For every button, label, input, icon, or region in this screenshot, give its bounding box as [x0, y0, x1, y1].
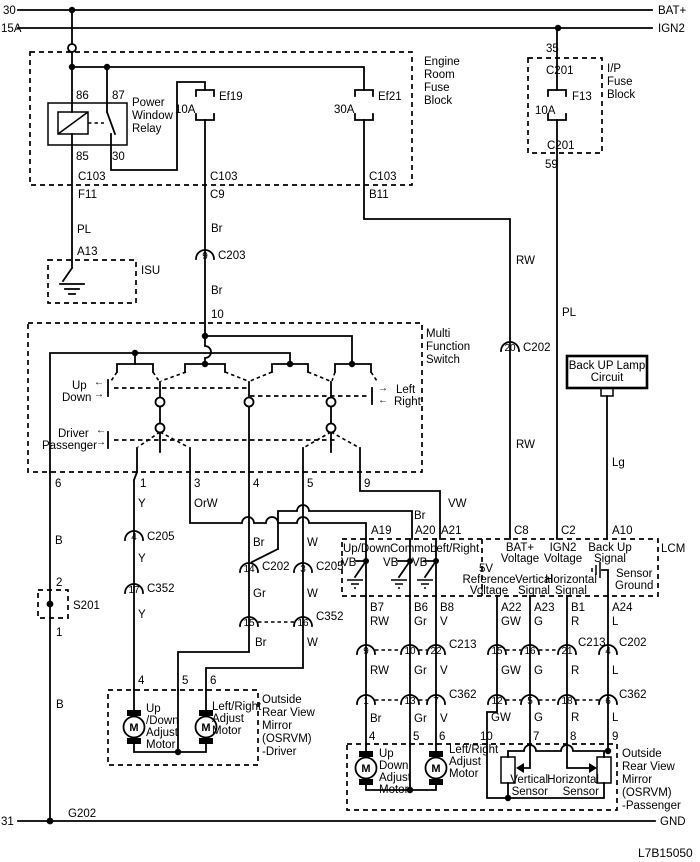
isu-run-label: A13 [77, 246, 97, 258]
lcm-label: A20 [415, 525, 435, 537]
multi-function-switch-label: Down [62, 392, 91, 404]
svg-text:M: M [431, 763, 440, 775]
passenger-mirror-label: Motor [379, 784, 409, 796]
switch-output-pins-label: 4 [253, 478, 260, 490]
engine-room-fuse-block-label: C103 [369, 171, 397, 183]
passenger-chain-label: 8 [570, 731, 576, 743]
passenger-chain-label: 5 [413, 731, 419, 743]
svg-text:M: M [361, 763, 370, 775]
passenger-mirror-label: (OSRVM) [622, 787, 672, 799]
bat-voltage-run-label: RW [516, 439, 535, 451]
engine-room-fuse-block-label: C9 [210, 189, 225, 201]
bat-voltage-run-label: 20 [504, 343, 516, 354]
engine-room-fuse-block-label: 87 [112, 90, 125, 102]
passenger-chain-label: 12 [491, 696, 503, 707]
driver-chain-label: 17 [128, 585, 140, 596]
passenger-chain-label: V [440, 616, 448, 628]
top-buses-label: IGN2 [658, 23, 685, 35]
driver-chain-label: Y [138, 609, 146, 621]
lcm-label: Signal [555, 585, 587, 597]
lcm-label: Sensor [616, 568, 653, 580]
engine-room-fuse-block-label: 30 [112, 151, 125, 163]
multi-function-switch-label: Passenger [42, 440, 97, 452]
driver-chain-label: 4 [131, 532, 137, 543]
leftright-motor-icon-passenger: M [426, 751, 447, 785]
passenger-chain-label: R [571, 616, 579, 628]
ip-fuse-block-label: 10A [535, 105, 556, 117]
driver-mirror-label: 4 [138, 675, 145, 687]
driver-chain-label: Gr [253, 588, 266, 600]
lcm-label: Left/Right [430, 543, 480, 555]
ip-fuse-block-label: Block [607, 89, 635, 101]
engine-room-fuse-block-label: Fuse [424, 82, 450, 94]
passenger-mirror-label: Outside [622, 748, 662, 760]
passenger-chain-label: 7 [533, 731, 539, 743]
lcm-label: A22 [501, 602, 521, 614]
engine-room-fuse-block-label: 86 [76, 90, 89, 102]
engine-room-fuse-block-label: Block [424, 95, 452, 107]
passenger-mirror-label: Vertical [510, 774, 548, 786]
driver-chain-label: G202 [68, 808, 96, 820]
lcm-label: A19 [371, 525, 391, 537]
driver-chain-label: C352 [316, 611, 344, 623]
engine-room-fuse-block-label: B11 [369, 189, 389, 201]
passenger-chain-label: 4 [605, 646, 611, 657]
passenger-chain-label: G [534, 616, 543, 628]
multi-function-switch-label: ← [96, 425, 106, 436]
switch-feed-run-label: Br [211, 285, 223, 297]
driver-mirror-label: Motor [212, 725, 242, 737]
ip-fuse-block-label: 35 [546, 43, 559, 55]
power-window-relay [48, 103, 127, 145]
lcm-label: Signal [518, 585, 550, 597]
switch-feed-run-label: Br [211, 223, 223, 235]
driver-mirror-label: Adjust [146, 727, 179, 739]
svg-text:M: M [129, 722, 138, 734]
passenger-mirror-label: Up [379, 748, 394, 760]
top-buses-label: 30 [3, 5, 16, 17]
ip-fuse-block-label: I/P [607, 63, 621, 75]
ground-bus-label: GND [660, 816, 686, 828]
isu-box [48, 145, 136, 303]
passenger-mirror-label: Left/Right [449, 744, 499, 756]
engine-room-fuse-block-label: Engine [424, 56, 460, 68]
multi-function-switch-label: → [94, 389, 104, 400]
driver-chain-label: 3 [300, 564, 306, 575]
driver-chain-label: C202 [262, 561, 290, 573]
wiring-diagram-page: M M [0, 0, 700, 862]
s201-splice [38, 590, 68, 618]
driver-mirror-label: Mirror [262, 720, 292, 732]
driver-chain-label: 14 [243, 564, 255, 575]
passenger-chain-label: R [571, 665, 579, 677]
passenger-mirror-label: Rear View [622, 761, 676, 773]
lcm-label: Up/Down [343, 543, 390, 555]
engine-room-fuse-block-label: 85 [76, 151, 89, 163]
lcm-label: B1 [571, 602, 585, 614]
lcm-label: C8 [514, 525, 529, 537]
backup-lamp-label: Back UP Lamp [569, 360, 646, 372]
top-buses-label: 15A [1, 23, 22, 35]
driver-mirror-label: 6 [210, 675, 216, 687]
passenger-chain-label: C362 [619, 689, 647, 701]
engine-room-fuse-block-label: 10A [175, 104, 196, 116]
lcm-label: A21 [441, 525, 461, 537]
passenger-mirror-label: Down [379, 760, 408, 772]
engine-room-fuse-block-label: C103 [210, 171, 238, 183]
passenger-chain-label: C362 [449, 689, 477, 701]
switch-output-pins-label: 9 [364, 478, 370, 490]
ground-bus-label: L7B15050 [638, 846, 693, 860]
engine-room-fuse-block-label: Relay [132, 123, 162, 135]
switch-feed-run-label: 10 [211, 309, 224, 321]
passenger-chain-label: Gr [414, 713, 427, 725]
passenger-chain-label: 22 [430, 646, 442, 657]
ip-fuse-block-label: C201 [547, 140, 575, 152]
passenger-chain-label: 7 [433, 696, 439, 707]
multi-function-switch-label: Function [426, 341, 470, 353]
engine-room-fuse-block-label: C103 [78, 171, 106, 183]
driver-chain-label: 15 [243, 618, 255, 629]
driver-chain-label: Br [255, 637, 267, 649]
top-buses-label: BAT+ [658, 5, 687, 17]
lcm-label: LCM [661, 543, 685, 555]
engine-room-fuse-block-label: 30A [334, 104, 355, 116]
driver-chain-label: W [307, 637, 318, 649]
lcm-label: A23 [534, 602, 554, 614]
engine-room-fuse-block-label: Ef19 [219, 91, 243, 103]
lcm-label: VB [383, 557, 399, 569]
engine-room-fuse-block-label: Window [132, 110, 174, 122]
lcm-label: Voltage [470, 585, 508, 597]
switch-output-pins-label: Br [253, 537, 265, 549]
lcm-label: VB [341, 557, 357, 569]
passenger-mirror-label: Mirror [622, 774, 652, 786]
passenger-chain-label: 21 [561, 646, 573, 657]
passenger-chain-label: L [612, 665, 619, 677]
passenger-chain-label: 1 [363, 696, 369, 707]
driver-chain-label: S201 [73, 600, 100, 612]
ip-fuse-block-label: 59 [545, 159, 558, 171]
switch-output-pins-label: VW [448, 498, 467, 510]
lcm-label: Signal [594, 553, 626, 565]
passenger-chain-label: Gr [414, 665, 427, 677]
driver-mirror-label: /Down [146, 715, 179, 727]
updown-motor-icon: M [124, 710, 145, 744]
multi-function-switch-label: Left [396, 384, 416, 396]
passenger-chain-label: Gr [414, 616, 427, 628]
driver-mirror-label: Outside [262, 694, 302, 706]
isu-run-label: PL [77, 224, 92, 236]
wiring-diagram-canvas: M M [0, 0, 700, 862]
switch-feed-run-label: C203 [218, 250, 246, 262]
lcm-label: Ground [615, 580, 653, 592]
updown-motor-icon-passenger: M [356, 751, 377, 785]
vb-ground-icons [347, 580, 433, 588]
lcm-label: C2 [561, 525, 576, 537]
multi-function-switch-label: Up [72, 380, 87, 392]
passenger-chain-label: RW [370, 665, 389, 677]
engine-room-fuse-block-label: F11 [78, 189, 97, 201]
passenger-chain-label: L [612, 712, 619, 724]
passenger-chain-label: RW [370, 616, 389, 628]
passenger-chain-label: G [534, 665, 543, 677]
ip-fuse-block-label: C201 [546, 65, 574, 77]
lcm-label: A10 [612, 525, 632, 537]
passenger-chain-label: R [571, 712, 579, 724]
passenger-mirror-label: Sensor [512, 786, 549, 798]
driver-mirror-label: (OSRVM) [262, 733, 312, 745]
passenger-chain-label: GW [501, 616, 521, 628]
driver-chain-label: 2 [56, 577, 62, 589]
lcm-label: Voltage [544, 553, 582, 565]
lcm-label: B8 [440, 602, 454, 614]
driver-mirror-label: Rear View [262, 707, 316, 719]
switch-feed-run-label: 9 [202, 251, 208, 262]
lcm-label: VB [412, 557, 428, 569]
passenger-chain-label: 6 [439, 731, 445, 743]
passenger-chain-label: 4 [369, 731, 376, 743]
bat-voltage-run-label: C202 [523, 342, 551, 354]
switch-output-pins-label: 6 [55, 478, 61, 490]
lcm-label: A24 [612, 602, 633, 614]
driver-chain-label: C205 [316, 561, 344, 573]
passenger-chain-label: 16 [524, 646, 536, 657]
lcm-label: B6 [414, 602, 428, 614]
passenger-chain-label: C213 [578, 637, 606, 649]
engine-room-fuse-block-label: Ef21 [378, 91, 402, 103]
switch-output-pins-label: 1 [140, 478, 146, 490]
fuse-ef19 [196, 90, 214, 336]
isu-run-label: ISU [141, 265, 160, 277]
passenger-chain-label: 10 [480, 731, 493, 743]
multi-function-switch-label: ← [94, 377, 104, 388]
driver-chain-label: Y [138, 553, 146, 565]
passenger-chain-label: 18 [561, 696, 573, 707]
driver-chain-label: B [56, 699, 64, 711]
multi-function-switch-label: → [96, 437, 106, 448]
passenger-chain-label: 9 [363, 646, 369, 657]
engine-room-fuse-block-label: Room [424, 69, 455, 81]
ign-voltage-run-label: PL [562, 307, 577, 319]
passenger-mirror-label: -Passenger [622, 800, 681, 812]
passenger-mirror-label: Motor [449, 768, 479, 780]
driver-mirror-label: Left/Right [212, 701, 262, 713]
passenger-chain-label: V [440, 665, 448, 677]
driver-mirror-label: 5 [182, 675, 188, 687]
passenger-mirror-label: Sensor [563, 786, 600, 798]
passenger-chain-label: V [440, 713, 448, 725]
passenger-mirror-label: Adjust [449, 756, 482, 768]
bat-voltage-run-label: RW [516, 255, 535, 267]
backup-lamp-label: Circuit [591, 372, 624, 384]
switch-output-pins-label: W [307, 537, 318, 549]
driver-chain-label: 16 [297, 618, 309, 629]
passenger-chain-label: 5 [527, 696, 533, 707]
connector-icons [125, 250, 617, 704]
multi-function-switch-label: Driver [58, 428, 89, 440]
passenger-chain-label: Br [370, 713, 382, 725]
passenger-chain-label: L [612, 616, 619, 628]
driver-mirror-label: Up [146, 703, 161, 715]
ground-icon [60, 284, 84, 294]
passenger-mirror-label: Adjust [379, 772, 412, 784]
driver-chain-label: C352 [147, 583, 175, 595]
passenger-chain-label: C213 [449, 639, 477, 651]
ground-bus-line [18, 818, 655, 825]
lcm-label: B7 [370, 602, 384, 614]
driver-chain-label: 1 [56, 627, 62, 639]
ip-fuse-block-label: Fuse [607, 76, 633, 88]
passenger-chain-label: 10 [404, 646, 416, 657]
ground-bus-label: 31 [1, 816, 14, 828]
ip-fuse-block-label: F13 [572, 91, 592, 103]
svg-text:M: M [201, 722, 210, 734]
switch-output-pins-label: 5 [307, 478, 313, 490]
driver-mirror-label: Adjust [212, 713, 245, 725]
switch-output-pins-label: OrW [194, 498, 218, 510]
switch-output-pins-label: B [55, 535, 63, 547]
passenger-chain-label: 9 [612, 731, 618, 743]
switch-output-pins-label: Br [414, 510, 426, 522]
multi-function-switch-label: → [378, 383, 388, 394]
driver-chain-label: C205 [147, 531, 175, 543]
passenger-chain-label: 15 [491, 646, 503, 657]
multi-function-switch-label: Switch [426, 354, 460, 366]
passenger-chain-label: G [534, 712, 543, 724]
passenger-chain-label: GW [501, 665, 521, 677]
switch-output-pins-label: Y [138, 498, 146, 510]
passenger-chain-label: 13 [404, 696, 416, 707]
passenger-mirror-label: Horizontal [547, 774, 599, 786]
passenger-chain-label: GW [491, 712, 511, 724]
driver-mirror-label: Motor [146, 739, 176, 751]
multi-function-switch-label: ← [378, 395, 388, 406]
lcm-label: Voltage [501, 553, 539, 565]
multi-function-switch-label: Multi [426, 328, 450, 340]
diagram-labels: 30BAT+15AIGN28687PowerWindowRelay8530Ef1… [1, 5, 693, 860]
passenger-chain-label: C202 [619, 637, 647, 649]
backup-lamp-label: Lg [612, 457, 625, 469]
engine-room-fuse-block-label: Power [132, 97, 165, 109]
passenger-chain-label: 6 [605, 696, 611, 707]
switch-output-pins-label: 3 [194, 478, 200, 490]
driver-mirror-label: -Driver [262, 746, 297, 758]
driver-chain-label: W [307, 588, 318, 600]
multi-function-switch-label: Right [394, 396, 422, 408]
